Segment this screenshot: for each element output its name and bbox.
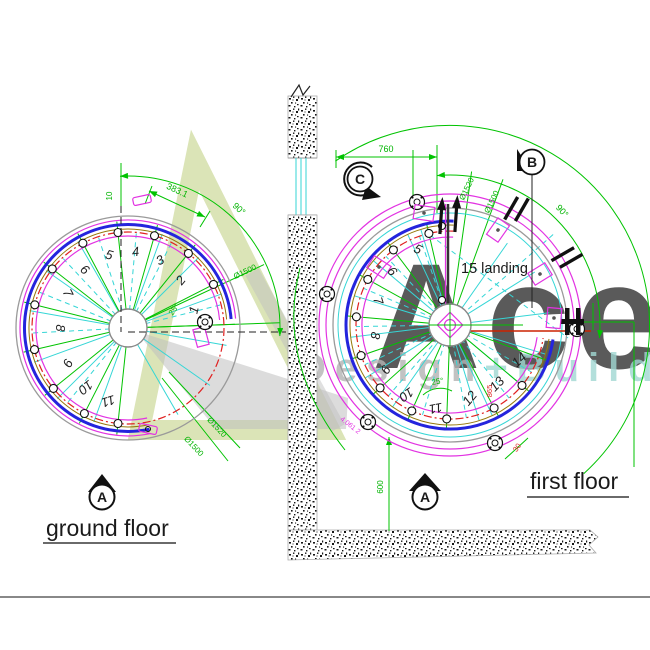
watermark: Ace Design+Build [136, 160, 650, 430]
ground-floor-marker: A [88, 474, 116, 510]
first-floor-title: first floor [530, 468, 619, 494]
ground-floor-title: ground floor [46, 515, 169, 541]
sweep-angle-dim: 90° [554, 203, 571, 220]
first-floor-marker: A [409, 473, 441, 510]
drawing-sheet: Ace Design+Build [0, 0, 650, 650]
wall-break-line [291, 85, 310, 97]
step-number: 6 [77, 261, 93, 278]
section-marker-c: C [344, 163, 381, 201]
step-number: 10 [75, 377, 96, 398]
step-number: 11 [100, 392, 117, 410]
section-marker-b-letter: B [527, 154, 537, 170]
ground-floor-marker-letter: A [97, 489, 107, 505]
step-number: 1 [185, 305, 201, 316]
landing-label: 15 landing [461, 261, 528, 277]
top-width-dim: 760 [378, 144, 393, 154]
handrail-hook-top [132, 194, 151, 206]
step-number: 8 [53, 324, 68, 332]
wall-top-column [288, 96, 317, 158]
outer-diameter-dim: Ø1520 [457, 176, 476, 202]
step-number: 9 [60, 356, 77, 369]
spiral-stair-drawing: Ace Design+Build [0, 0, 650, 650]
section-marker-c-letter: C [355, 171, 365, 187]
wall-offset-dim: 600 [376, 480, 385, 494]
floor-slab [288, 530, 598, 560]
baluster-mark [505, 194, 529, 225]
step-number: 4 [131, 244, 140, 260]
offset-dim: 10 [105, 191, 114, 200]
first-floor-marker-letter: A [420, 489, 430, 505]
newel-column [109, 309, 147, 347]
step-number: 11 [428, 400, 444, 417]
step-number: 7 [60, 286, 77, 300]
dim-extension [200, 211, 210, 227]
radius-865-dim: 865 [485, 385, 494, 398]
step-number: 5 [104, 246, 116, 263]
